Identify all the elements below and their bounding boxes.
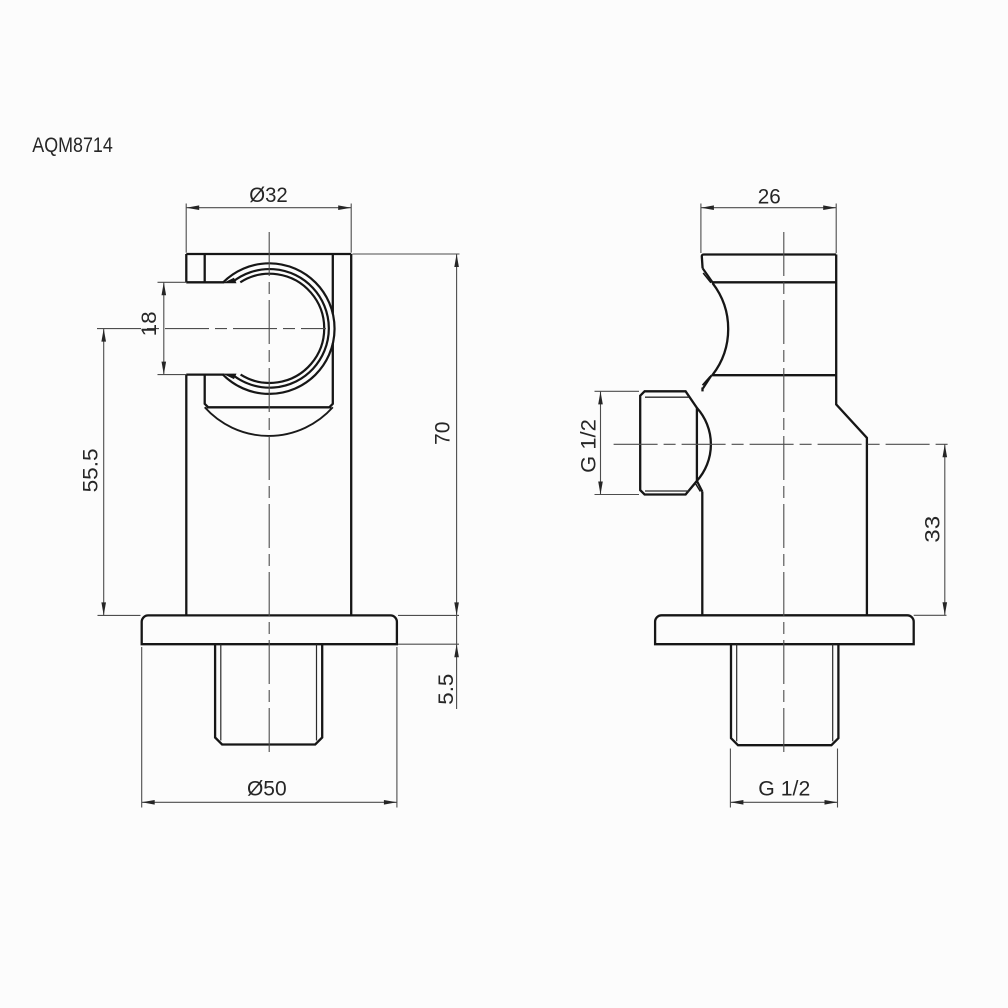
svg-text:G 1/2: G 1/2 xyxy=(578,419,601,473)
svg-text:Ø50: Ø50 xyxy=(247,777,287,800)
svg-text:55.5: 55.5 xyxy=(79,448,102,492)
svg-text:Ø32: Ø32 xyxy=(249,184,288,207)
svg-text:18: 18 xyxy=(138,311,161,336)
svg-text:26: 26 xyxy=(758,185,781,208)
svg-text:70: 70 xyxy=(432,422,455,446)
svg-text:33: 33 xyxy=(922,516,945,543)
svg-text:G 1/2: G 1/2 xyxy=(758,777,810,800)
svg-text:5.5: 5.5 xyxy=(435,674,458,705)
svg-text:AQM8714: AQM8714 xyxy=(32,134,113,157)
